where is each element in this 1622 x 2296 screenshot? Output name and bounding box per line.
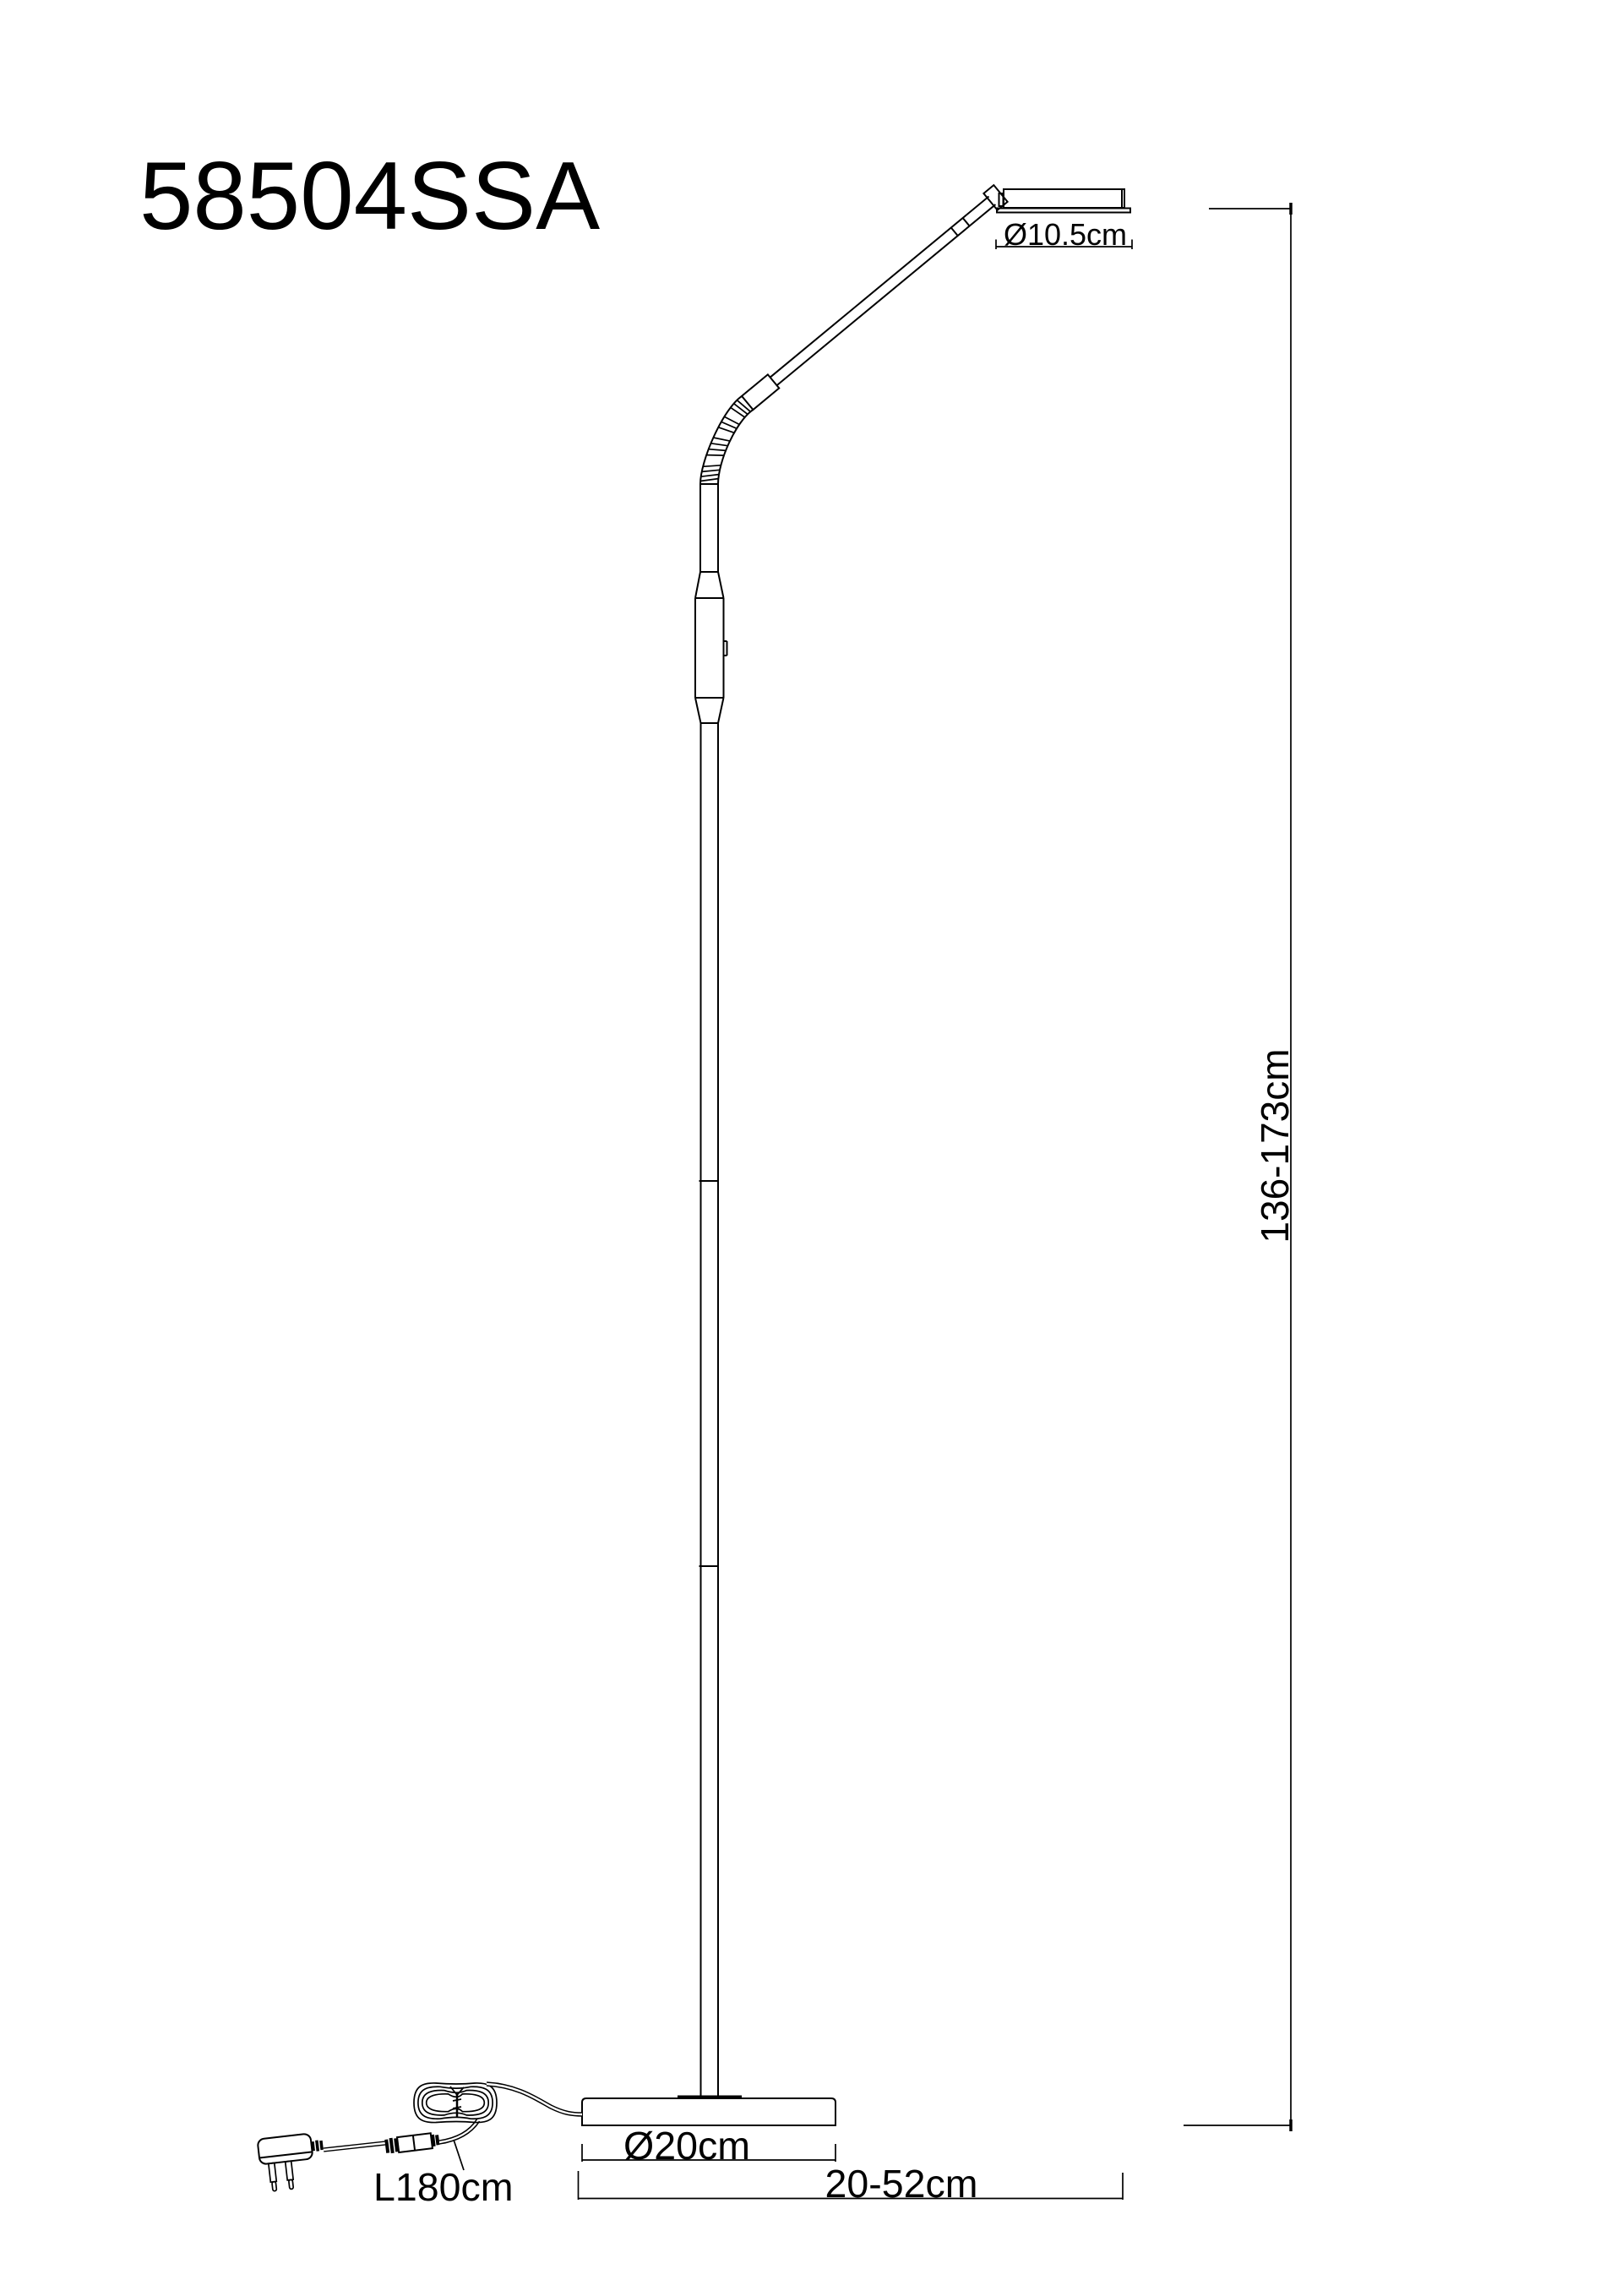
svg-text:20-52cm: 20-52cm bbox=[825, 2162, 978, 2206]
svg-text:L180cm: L180cm bbox=[373, 2165, 513, 2209]
svg-text:Ø20cm: Ø20cm bbox=[623, 2124, 750, 2168]
svg-text:58504SSA: 58504SSA bbox=[139, 143, 600, 250]
svg-text:Ø10.5cm: Ø10.5cm bbox=[1004, 217, 1127, 252]
svg-text:136-173cm: 136-173cm bbox=[1253, 1048, 1297, 1243]
